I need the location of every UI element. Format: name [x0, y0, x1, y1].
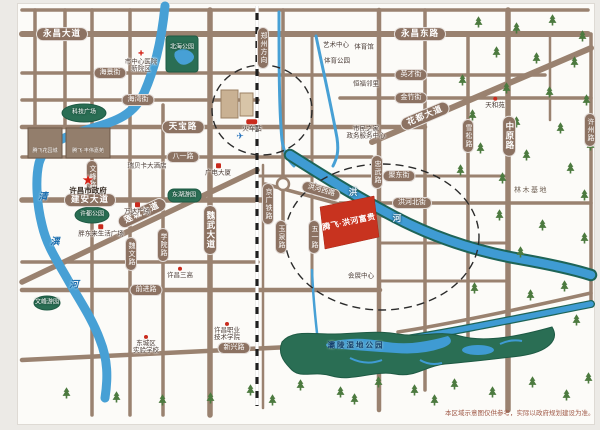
yongchang-east-road-label: 永昌东路	[394, 27, 446, 41]
beihai-park-label: 北海公园	[170, 45, 194, 52]
linmu-base-label: 林木基地	[514, 187, 548, 195]
cross-icon: ✚	[138, 51, 144, 58]
haijing-street-label: 海景街	[94, 67, 127, 79]
yuquan-road-label: 玉泉路	[275, 220, 287, 254]
tianheyuan-label: 天和苑	[485, 97, 505, 109]
xuzhou-road-label: 许州路	[584, 113, 596, 147]
xueyuan-road-label: 学院路	[157, 228, 169, 262]
xudu-park-label: 许都公园	[80, 212, 104, 219]
honghe-west-road-label: 洪河西路	[300, 180, 342, 203]
honghe-north-street-label: 洪河北街	[392, 197, 432, 209]
star-icon: ★	[83, 174, 94, 186]
convention-center-label: 会展中心	[348, 272, 374, 279]
tengfei-garden-city-label: 腾飞花园城	[32, 149, 57, 155]
sq-icon	[99, 224, 104, 229]
haiwan-street-label: 海湾街	[122, 94, 155, 106]
huadu-avenue-label: 花都大道	[398, 100, 451, 133]
wenfeng-road-label: 文峰路	[86, 160, 98, 194]
gymnasium-label: 体育馆	[354, 43, 374, 50]
qianjin-road-label: 前进路	[130, 284, 163, 296]
wanda-plaza-label: 万达广场	[124, 202, 150, 215]
hengfu-linli-label: 恒福邻里	[353, 80, 379, 87]
xinxing-road-label: 新兴路	[218, 342, 251, 354]
wenfeng-garden-label: 文峰游园	[35, 300, 59, 307]
dot-icon	[493, 97, 497, 101]
jinzhu-street-label: 金竹街	[395, 92, 428, 104]
sq-icon	[135, 202, 140, 207]
dot-icon	[178, 267, 182, 271]
bayi-road-label: 八一路	[167, 151, 200, 163]
zhongyuan-road-label: 中原路	[502, 116, 516, 157]
xuesong-road-label: 雪松路	[462, 119, 474, 153]
wuyi-road-label: 五一路	[308, 220, 320, 254]
yongchang-avenue-label: 永昌大道	[36, 27, 88, 41]
keji-square-label: 科技广场	[72, 110, 96, 117]
air-ticket-office-icon: ✈	[236, 132, 244, 142]
citizens-home-label: 市民之家 政务服务中心	[347, 126, 386, 141]
jingguang-railway-label: 京广铁路	[262, 183, 274, 225]
qingyi-river-char-1: 清	[38, 193, 48, 204]
sports-park-label: 体育公园	[324, 57, 350, 64]
weiwu-avenue-label: 魏武大道	[203, 205, 217, 255]
tianbao-road-label: 天宝路	[162, 120, 205, 134]
vocational-college-label: 许昌职业 技术学院	[214, 322, 240, 342]
honghe-river-char-1: 洪	[349, 188, 358, 198]
city-central-hospital-label: ✚市中心医院 新院区	[125, 51, 158, 74]
honghe-river-char-2: 河	[393, 214, 402, 224]
guangdian-tower-label: 广电大厦	[205, 163, 231, 176]
sq-icon	[216, 163, 221, 168]
jianan-avenue-label: 建安大道	[64, 193, 116, 207]
dot-icon	[225, 322, 229, 326]
qingyi-river-char-2: 潩	[50, 238, 60, 249]
plane-icon: ✈	[236, 132, 244, 141]
zhengzhou-direction-label: 郑州方向	[257, 27, 269, 69]
qingyi-river-char-3: 河	[69, 281, 79, 292]
liancheng-avenue-label: 莲城大道	[116, 196, 169, 230]
dongcheng-experimental-school-label: 东城区 实验学校	[133, 335, 159, 355]
weiwen-road-label: 魏文路	[125, 237, 137, 271]
train-icon	[247, 119, 258, 124]
judong-street-label: 聚东街	[383, 170, 416, 182]
location-map: 永昌大道永昌东路海景街海湾街天宝路八一路建安大道莲城大道前进路新兴路英才街金竹街…	[0, 0, 600, 430]
yingcai-street-label: 英才街	[395, 69, 428, 81]
pangdonglai-plaza-label: 胖东来生活广场	[78, 224, 124, 237]
tengfei-fengwei-jiayuan-label: 腾飞·丰伟嘉苑	[72, 149, 104, 155]
baling-wetland-park-label: 灞陵湿地公园	[328, 342, 385, 351]
xuchang-city-government-label: ★许昌市政府	[69, 174, 107, 196]
no3-high-school-label: 许昌三高	[167, 267, 193, 279]
map-labels-layer: 永昌大道永昌东路海景街海湾街天宝路八一路建安大道莲城大道前进路新兴路英才街金竹街…	[0, 0, 600, 430]
dot-icon	[144, 335, 148, 339]
art-center-label: 艺术中心	[323, 41, 349, 48]
ruibeika-hotel-label: 瑞贝卡大酒店	[128, 162, 167, 169]
zhongwu-road-label: 忠武路	[371, 155, 383, 189]
railway-station-label: 火车站	[242, 119, 262, 132]
donghu-garden-label: 东湖游园	[172, 193, 196, 200]
